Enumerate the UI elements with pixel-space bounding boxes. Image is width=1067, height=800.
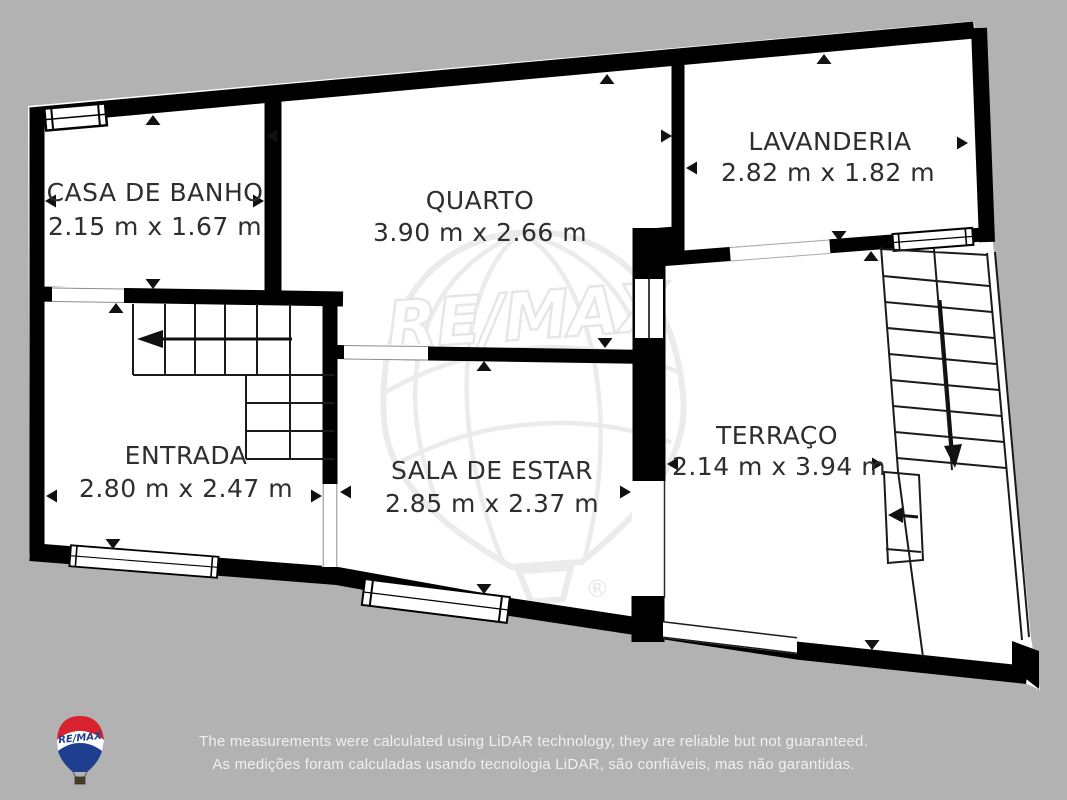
- door-opening-entrada-sala: [322, 484, 338, 567]
- room-dims-lavanderia: 2.82 m x 1.82 m: [721, 158, 935, 187]
- room-label-lavanderia: LAVANDERIA: [748, 127, 911, 156]
- room-label-entrada: ENTRADA: [125, 441, 248, 470]
- room-dims-casa-de-banho: 2.15 m x 1.67 m: [48, 212, 262, 241]
- disclaimer-line-pt: As medições foram calculadas usando tecn…: [0, 753, 1067, 776]
- wall-junction: [656, 226, 682, 264]
- room-label-casa-de-banho: CASA DE BANHO: [47, 178, 264, 207]
- floorplan-canvas: RE/MAX ®: [0, 0, 1067, 800]
- door-opening-hall: [344, 345, 428, 361]
- window-terraco-wall: [634, 278, 664, 339]
- room-label-terraco: TERRAÇO: [715, 421, 838, 450]
- disclaimer: The measurements were calculated using L…: [0, 730, 1067, 776]
- room-dims-quarto: 3.90 m x 2.66 m: [373, 218, 587, 247]
- watermark-registered-mark: ®: [584, 574, 610, 604]
- window-casa-de-banho: [44, 103, 107, 130]
- disclaimer-line-en: The measurements were calculated using L…: [0, 730, 1067, 753]
- room-label-sala-de-estar: SALA DE ESTAR: [391, 456, 593, 485]
- room-dims-terraco: 2.14 m x 3.94 m: [672, 452, 886, 481]
- door-opening-bathroom: [52, 287, 124, 303]
- room-dims-sala-de-estar: 2.85 m x 2.37 m: [385, 489, 599, 518]
- door-opening-sala-terraco: [632, 481, 666, 598]
- floorplan-svg: RE/MAX ®: [0, 0, 1067, 800]
- room-dims-entrada: 2.80 m x 2.47 m: [79, 474, 293, 503]
- room-label-quarto: QUARTO: [426, 186, 535, 215]
